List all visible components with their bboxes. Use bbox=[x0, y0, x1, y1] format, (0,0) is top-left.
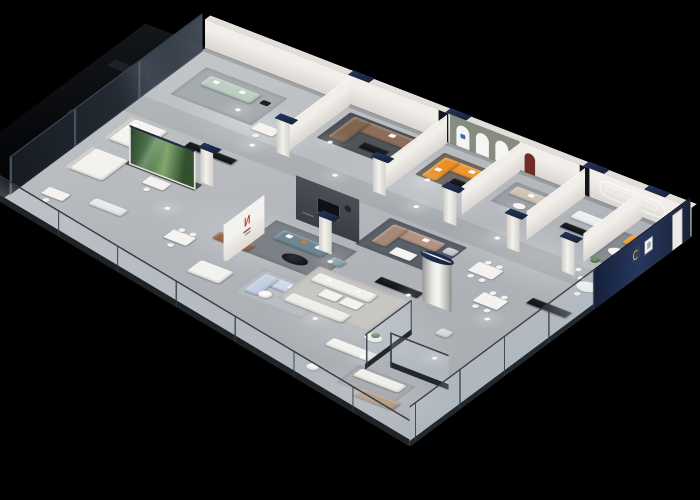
dining-chair bbox=[471, 304, 481, 309]
pillow bbox=[434, 167, 443, 172]
office-sofa-pale bbox=[88, 198, 129, 217]
dining-chair bbox=[466, 273, 476, 278]
frame-art bbox=[633, 248, 638, 261]
column bbox=[277, 119, 290, 158]
dining-chair bbox=[482, 308, 492, 313]
showroom-render: N bbox=[0, 0, 700, 500]
maroon-arch-niche bbox=[525, 152, 536, 176]
display-bed-2 bbox=[69, 148, 128, 181]
wall-shelf bbox=[302, 211, 313, 217]
pillow bbox=[91, 153, 100, 158]
downlight bbox=[482, 316, 493, 322]
dining-chair bbox=[477, 278, 487, 283]
pillow bbox=[117, 133, 126, 138]
pillow bbox=[324, 278, 333, 283]
pillow bbox=[212, 80, 221, 85]
dining-chair bbox=[166, 242, 176, 247]
pillow bbox=[238, 90, 247, 95]
white-wardrobe bbox=[672, 208, 682, 251]
column bbox=[443, 187, 456, 226]
desk-chair bbox=[142, 187, 152, 192]
frame-art bbox=[647, 241, 651, 250]
pillow bbox=[421, 238, 430, 243]
pillow bbox=[388, 133, 397, 138]
white-armchair bbox=[434, 328, 454, 338]
pillow bbox=[285, 234, 294, 239]
column bbox=[562, 237, 575, 276]
column bbox=[507, 214, 520, 253]
downlight bbox=[310, 316, 321, 322]
wall-frame-dark bbox=[633, 245, 641, 263]
column bbox=[200, 148, 213, 187]
pillow bbox=[354, 289, 363, 294]
column bbox=[373, 157, 386, 196]
pillow-orange bbox=[299, 240, 308, 245]
wall-art-dot bbox=[345, 204, 351, 213]
wall-frame-white bbox=[644, 235, 653, 256]
arch-logo-mark bbox=[460, 134, 465, 140]
white-display-bed bbox=[186, 260, 234, 284]
pillow bbox=[467, 170, 476, 175]
pillow bbox=[527, 193, 536, 198]
downlight bbox=[162, 205, 173, 211]
column bbox=[319, 216, 332, 255]
